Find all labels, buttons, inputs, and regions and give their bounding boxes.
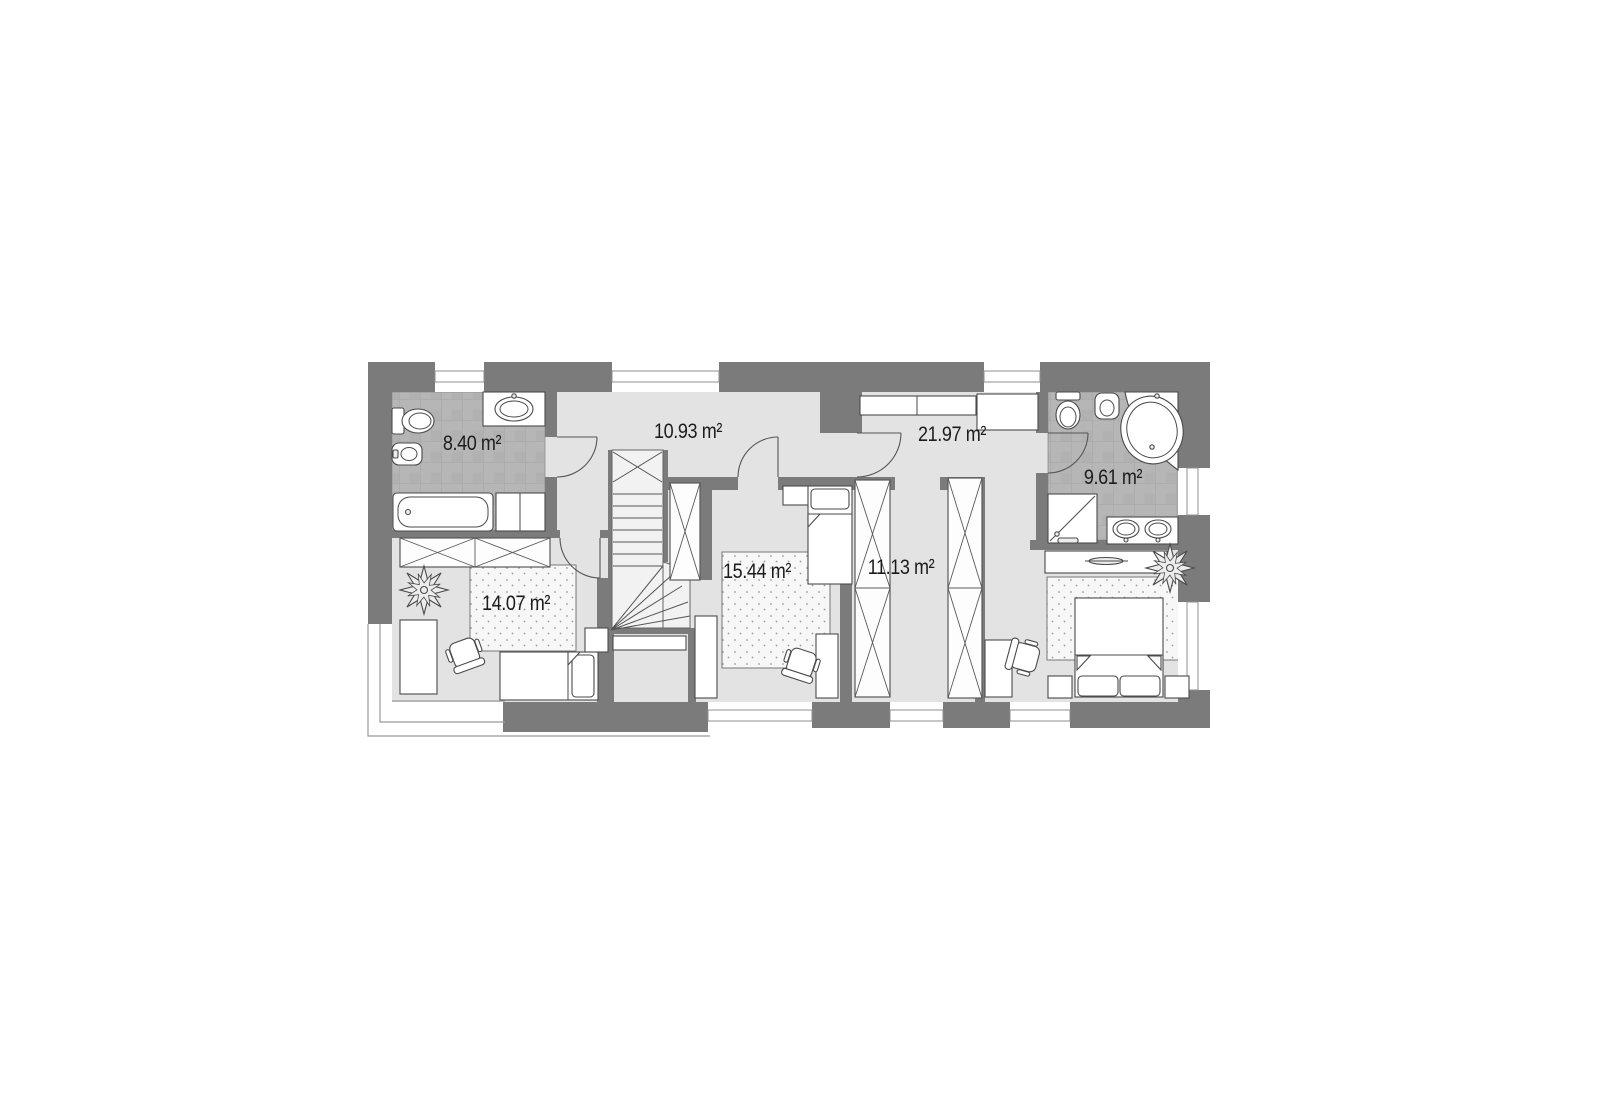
shower <box>1048 494 1097 543</box>
window <box>984 362 1040 392</box>
tall-cabinet <box>695 616 717 698</box>
wall-hung-toilet <box>392 408 434 434</box>
stair-landing <box>613 636 686 650</box>
toilet <box>1056 392 1080 429</box>
bathroom-cabinet <box>496 493 545 531</box>
room-label-bathroom-small: 8.40 m² <box>443 432 502 456</box>
sideboard <box>1045 551 1167 573</box>
floor-plan-page: 8.40 m² 10.93 m² 21.97 m² 9.61 m² 15.44 … <box>0 0 1600 1120</box>
low-cabinet <box>977 394 1038 430</box>
window <box>1010 702 1070 728</box>
wall-shelf <box>860 396 976 415</box>
wardrobe-closet-left <box>855 480 890 697</box>
nightstand-left <box>1048 676 1072 698</box>
single-bed <box>500 652 598 700</box>
wardrobe-closet <box>400 538 550 567</box>
hall-closet <box>670 483 700 580</box>
double-bed <box>1075 598 1163 697</box>
washbasin-counter <box>483 392 545 426</box>
plant <box>400 566 448 614</box>
nightstand <box>783 486 810 505</box>
floor-plan-drawing: 8.40 m² 10.93 m² 21.97 m² 9.61 m² 15.44 … <box>0 0 1600 1120</box>
nightstand <box>585 628 608 652</box>
room-label-bedroom-middle: 15.44 m² <box>723 560 792 584</box>
pillow <box>572 655 594 697</box>
window <box>708 702 812 728</box>
wardrobe-closet-right <box>948 478 982 698</box>
room-label-bedroom-left: 14.07 m² <box>482 592 551 616</box>
window <box>890 702 943 728</box>
room-label-bedroom-master: 21.97 m² <box>918 423 987 447</box>
bidet <box>1095 393 1119 419</box>
room-label-bathroom-master: 9.61 m² <box>1084 466 1143 490</box>
double-washbasin-counter <box>1107 517 1178 544</box>
pillow <box>1120 676 1160 696</box>
bidet <box>392 443 422 465</box>
window <box>435 362 484 392</box>
window <box>612 362 719 392</box>
pillow <box>811 489 849 509</box>
pillow <box>1078 676 1118 696</box>
nightstand-right <box>1165 676 1189 698</box>
desk <box>400 620 437 694</box>
plant <box>1146 544 1194 592</box>
bathtub <box>393 493 493 531</box>
room-label-hallway: 10.93 m² <box>654 420 723 444</box>
room-label-wardrobe: 11.13 m² <box>868 556 935 580</box>
window <box>1178 468 1210 515</box>
single-bed <box>808 486 852 584</box>
